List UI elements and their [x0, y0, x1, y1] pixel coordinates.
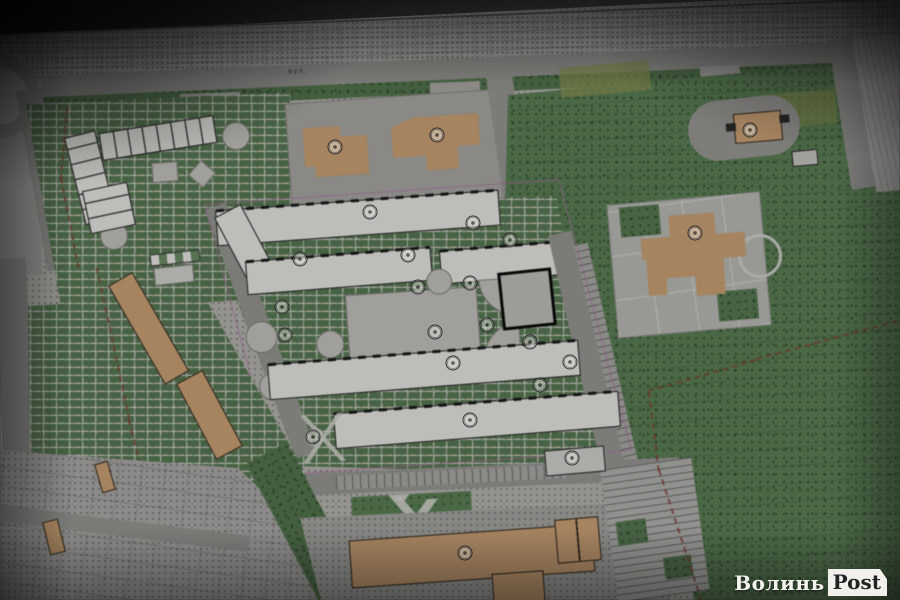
building-number-badge [275, 300, 290, 315]
watermark-site-name: Волинь [734, 570, 824, 596]
building-number-badge [480, 318, 495, 333]
building-number-badge [293, 252, 308, 267]
building-number-badge [743, 123, 758, 138]
building-number-badge [466, 216, 481, 231]
building-number-badge [328, 140, 343, 155]
building-number-badge [278, 328, 293, 343]
building-number-badge [533, 378, 548, 393]
building-number-badge [428, 325, 443, 340]
building-number-badge [503, 233, 518, 248]
building-number-badge [463, 413, 478, 428]
photo-of-site-plan: вул. Волинь Post [0, 0, 900, 600]
badge-layer [0, 0, 900, 600]
building-number-badge [463, 276, 478, 291]
building-number-badge [565, 451, 580, 466]
watermark-post-badge: Post [828, 569, 887, 596]
building-number-badge [430, 128, 445, 143]
building-number-badge [688, 226, 703, 241]
building-number-badge [446, 356, 461, 371]
building-number-badge [523, 335, 538, 350]
building-number-badge [306, 430, 321, 445]
building-number-badge [401, 248, 416, 263]
building-number-badge [363, 205, 378, 220]
watermark: Волинь Post [734, 569, 887, 596]
building-number-badge [411, 280, 426, 295]
building-number-badge [563, 355, 578, 370]
building-number-badge [458, 546, 473, 561]
